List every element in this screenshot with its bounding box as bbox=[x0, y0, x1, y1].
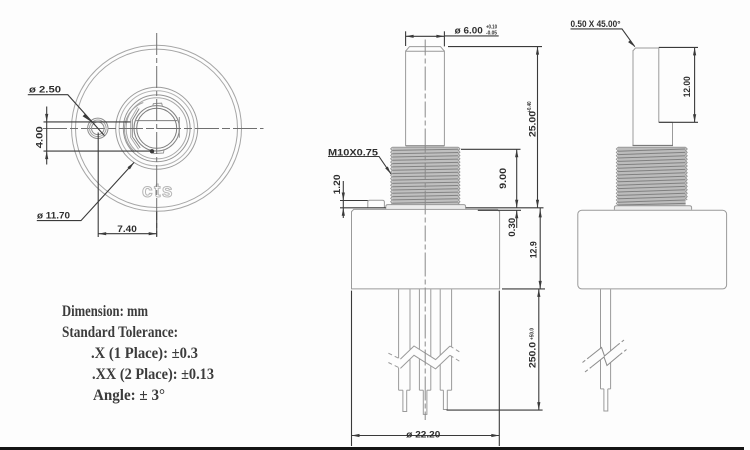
svg-text:250.0: 250.0 bbox=[528, 342, 538, 368]
svg-text:.X (1 Place): ±0.3: .X (1 Place): ±0.3 bbox=[91, 345, 198, 362]
svg-text:ø 22.20: ø 22.20 bbox=[406, 430, 440, 440]
svg-text:4.00: 4.00 bbox=[35, 126, 45, 148]
svg-text:12.9: 12.9 bbox=[529, 241, 539, 258]
svg-text:ø 6.00: ø 6.00 bbox=[455, 26, 483, 36]
svg-text:12.00: 12.00 bbox=[682, 76, 692, 97]
svg-text:Standard Tolerance:: Standard Tolerance: bbox=[62, 324, 178, 341]
svg-text:7.40: 7.40 bbox=[117, 224, 137, 234]
svg-text:.XX (2 Place): ±0.13: .XX (2 Place): ±0.13 bbox=[92, 366, 214, 383]
svg-text:9.00: 9.00 bbox=[498, 168, 508, 189]
svg-text:-0.05: -0.05 bbox=[486, 31, 497, 37]
svg-text:Angle: ± 3°: Angle: ± 3° bbox=[93, 387, 165, 404]
svg-text:+0.40: +0.40 bbox=[527, 102, 533, 113]
svg-text:1.20: 1.20 bbox=[332, 174, 342, 194]
svg-text:M10X0.75: M10X0.75 bbox=[328, 147, 378, 157]
svg-text:25.00: 25.00 bbox=[527, 111, 537, 137]
svg-text:0.30: 0.30 bbox=[507, 218, 517, 237]
svg-text:ø 11.70: ø 11.70 bbox=[37, 211, 70, 221]
svg-text:cts: cts bbox=[142, 181, 174, 202]
svg-text:0.50 X 45.00°: 0.50 X 45.00° bbox=[571, 19, 621, 29]
svg-text:+50.0: +50.0 bbox=[530, 328, 536, 340]
svg-text:ø 2.50: ø 2.50 bbox=[29, 85, 61, 95]
svg-text:Dimension: mm: Dimension: mm bbox=[62, 303, 149, 320]
